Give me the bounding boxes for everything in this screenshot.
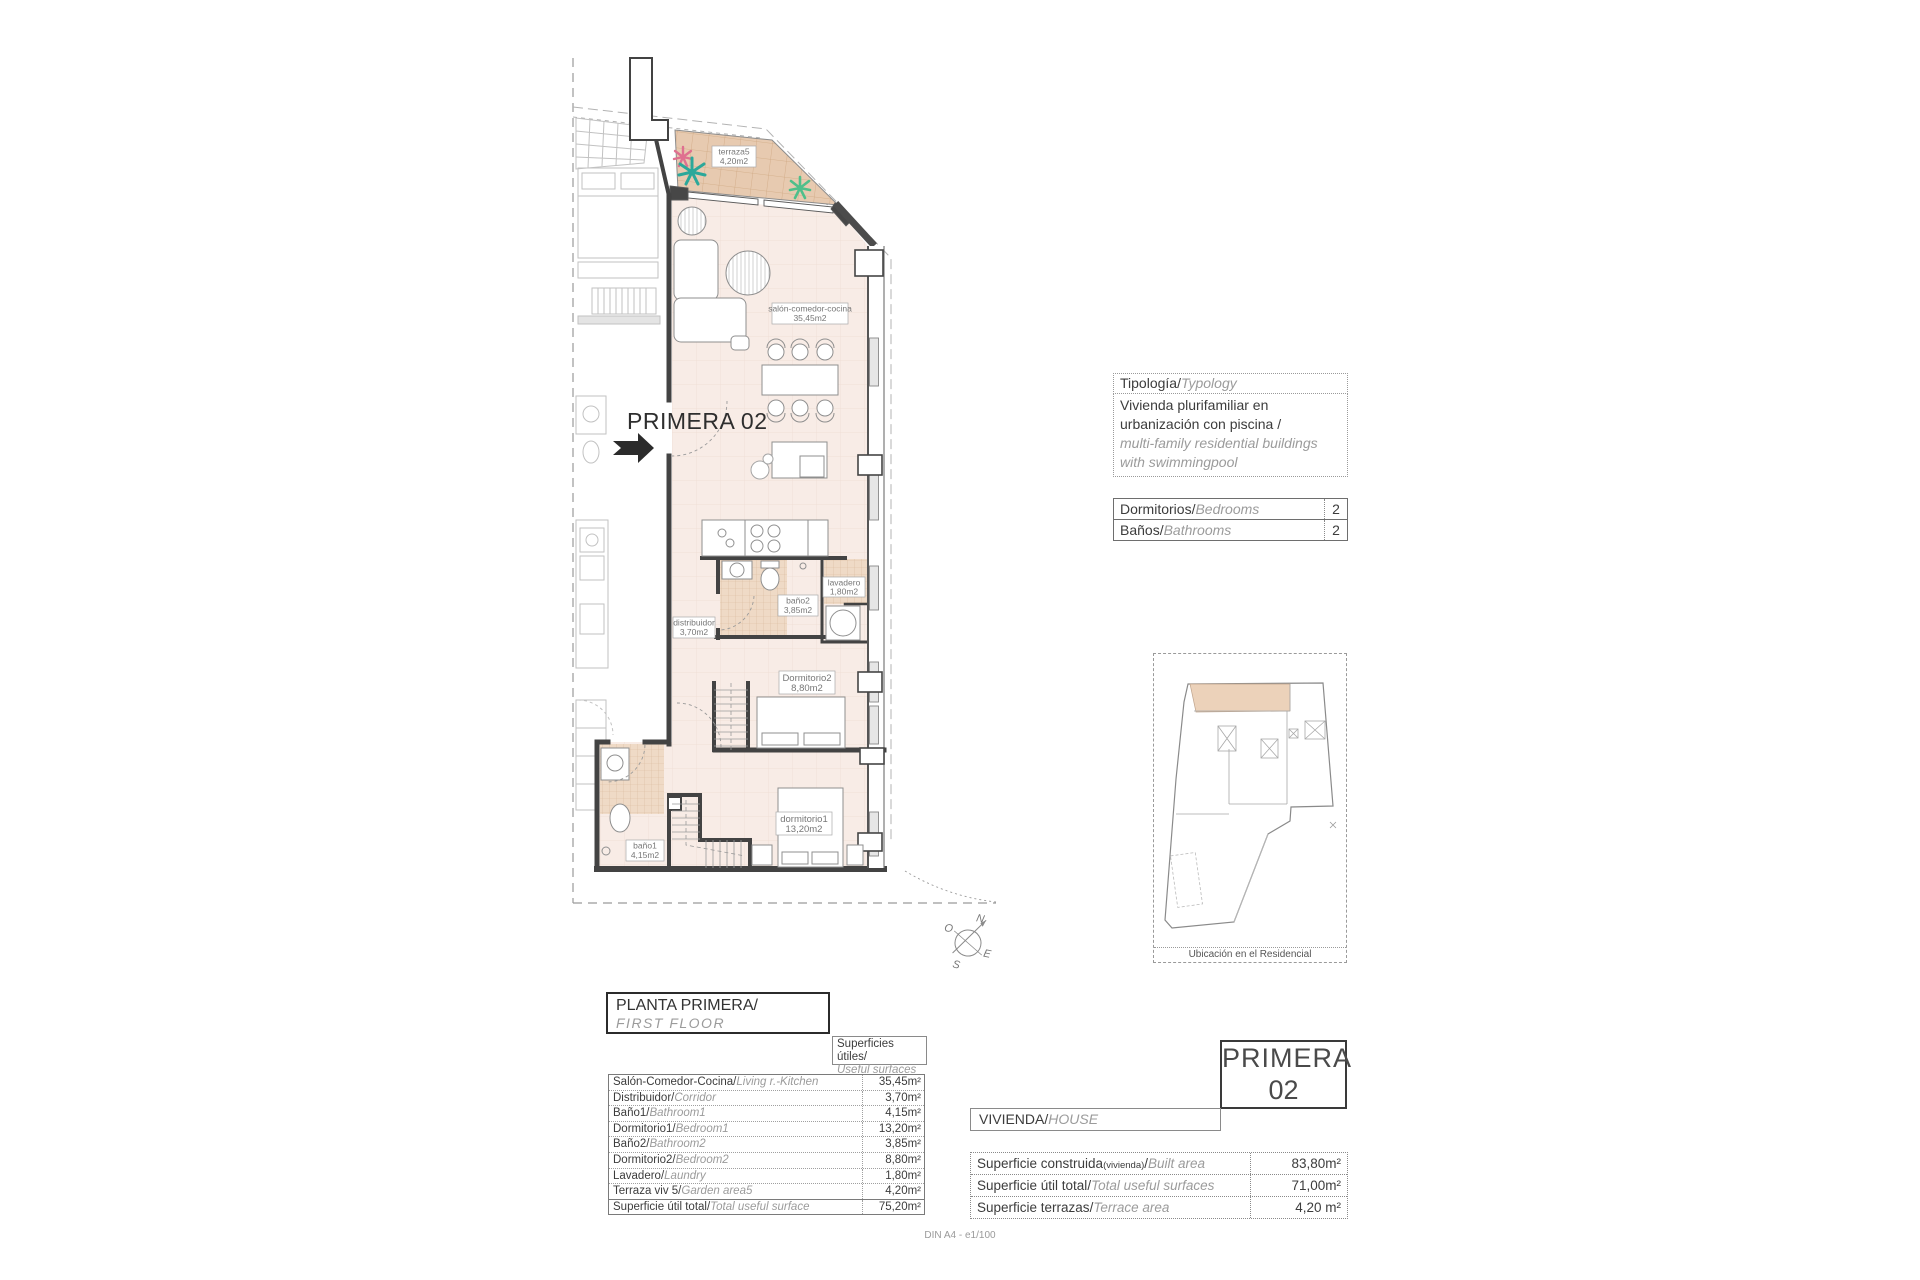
row-label-en: Total useful surfaces xyxy=(1091,1178,1214,1193)
location-map-caption: Ubicación en el Residencial xyxy=(1154,947,1346,962)
adjacent-unit xyxy=(576,118,660,810)
sheet: terraza5 4,20m2 salón-comedor-cocina 35,… xyxy=(0,0,1920,1280)
room-label-terraza: terraza5 4,20m2 xyxy=(712,146,756,167)
floor-title-box: PLANTA PRIMERA/ FIRST FLOOR xyxy=(606,992,830,1034)
compass-icon: N O E S xyxy=(936,906,999,977)
row-label-es: Terraza viv 5/ xyxy=(613,1185,681,1197)
table-row: Baño2/Bathroom2 3,85m² xyxy=(609,1136,924,1152)
svg-text:terraza5: terraza5 xyxy=(718,147,749,157)
row-label-es: Superficie útil total xyxy=(977,1178,1087,1193)
svg-text:4,20m2: 4,20m2 xyxy=(720,156,749,166)
row-value: 4,15m² xyxy=(862,1106,924,1121)
svg-text:8,80m2: 8,80m2 xyxy=(791,683,823,694)
table-row: Dormitorio2/Bedroom2 8,80m² xyxy=(609,1152,924,1168)
svg-text:3,70m2: 3,70m2 xyxy=(680,627,709,637)
typology-body: Vivienda plurifamiliar en urbanización c… xyxy=(1113,393,1348,477)
svg-text:35,45m2: 35,45m2 xyxy=(793,313,826,323)
row-label-en: Total useful surface xyxy=(710,1201,809,1213)
totals-table: Superficie construida(vivienda)/Built ar… xyxy=(970,1152,1348,1219)
table-row: Superficie útil total/Total useful surfa… xyxy=(971,1174,1347,1196)
svg-text:4,15m2: 4,15m2 xyxy=(631,850,660,860)
typology-line1: Vivienda plurifamiliar en xyxy=(1120,396,1341,415)
location-map-drawing xyxy=(1154,654,1346,948)
svg-text:3,85m2: 3,85m2 xyxy=(784,605,813,615)
table-row: Superficie terrazas/Terrace area 4,20 m² xyxy=(971,1196,1347,1218)
vivienda-label-es: VIVIENDA/ xyxy=(979,1111,1048,1127)
table-row: Lavadero/Laundry 1,80m² xyxy=(609,1168,924,1184)
svg-text:O: O xyxy=(943,922,954,936)
room-label-lavadero: lavadero 1,80m2 xyxy=(823,577,865,597)
floor-title-es: PLANTA PRIMERA/ xyxy=(616,996,828,1015)
bathrooms-count: 2 xyxy=(1324,520,1347,540)
bedrooms-label-en: Bedrooms xyxy=(1195,501,1259,517)
typology-header: Tipología/Typology xyxy=(1113,373,1348,394)
arrow-icon xyxy=(613,433,654,463)
row-label-en: Terrace area xyxy=(1093,1200,1169,1215)
table-row: Terraza viv 5/Garden area5 4,20m² xyxy=(609,1183,924,1199)
table-row: Distribuidor/Corridor 3,70m² xyxy=(609,1090,924,1106)
counts-table: Dormitorios/Bedrooms 2 Baños/Bathrooms 2 xyxy=(1113,498,1348,541)
row-label-es: Lavadero/ xyxy=(613,1170,664,1182)
row-value: 75,20m² xyxy=(862,1200,924,1215)
useful-surfaces-label: Superficies útiles/ Useful surfaces xyxy=(832,1036,927,1065)
svg-text:13,20m2: 13,20m2 xyxy=(786,824,823,835)
room-label-bano1: baño1 4,15m2 xyxy=(626,840,664,861)
row-label-en: Living r.-Kitchen xyxy=(736,1076,818,1088)
svg-text:S: S xyxy=(951,958,961,971)
row-label-es: Dormitorio1/ xyxy=(613,1123,676,1135)
row-value: 83,80m² xyxy=(1250,1153,1347,1174)
unit-number: 02 xyxy=(1222,1075,1345,1105)
bathrooms-label-en: Bathrooms xyxy=(1164,522,1232,538)
row-label-es: Baño2/ xyxy=(613,1138,649,1150)
svg-text:1,80m2: 1,80m2 xyxy=(830,587,859,597)
vivienda-header: VIVIENDA/HOUSE xyxy=(970,1108,1221,1131)
svg-text:salón-comedor-cocina: salón-comedor-cocina xyxy=(768,304,852,314)
bedrooms-label-es: Dormitorios/ xyxy=(1120,501,1195,517)
typology-title-es: Tipología/ xyxy=(1120,375,1181,391)
row-label-en: Bathroom1 xyxy=(649,1107,705,1119)
table-row-total: Superficie útil total/Total useful surfa… xyxy=(609,1199,924,1215)
row-value: 35,45m² xyxy=(862,1075,924,1090)
row-label-en: Garden area5 xyxy=(681,1185,752,1197)
row-label-es: Salón-Comedor-Cocina/ xyxy=(613,1076,736,1088)
row-label-en: Laundry xyxy=(664,1170,706,1182)
svg-text:distribuidor: distribuidor xyxy=(673,618,715,628)
row-label-es: Distribuidor/ xyxy=(613,1092,674,1104)
row-label-es: Superficie terrazas xyxy=(977,1200,1090,1215)
bathrooms-label-es: Baños/ xyxy=(1120,522,1164,538)
counts-row-bedrooms: Dormitorios/Bedrooms 2 xyxy=(1114,499,1347,519)
row-value: 1,80m² xyxy=(862,1169,924,1184)
row-value: 4,20 m² xyxy=(1250,1197,1347,1218)
row-label-en: Bedroom1 xyxy=(676,1123,729,1135)
svg-text:baño2: baño2 xyxy=(786,596,810,606)
row-label-es: Baño1/ xyxy=(613,1107,649,1119)
row-value: 3,85m² xyxy=(862,1137,924,1152)
bedrooms-count: 2 xyxy=(1324,499,1347,519)
row-value: 4,20m² xyxy=(862,1184,924,1199)
room-label-bano2: baño2 3,85m2 xyxy=(778,595,818,616)
location-map: Ubicación en el Residencial xyxy=(1153,653,1347,963)
floor-plan: terraza5 4,20m2 salón-comedor-cocina 35,… xyxy=(0,0,1920,1280)
room-label-salon: salón-comedor-cocina 35,45m2 xyxy=(768,303,852,324)
row-label-en: Corridor xyxy=(674,1092,716,1104)
unit-name: PRIMERA xyxy=(1222,1042,1345,1075)
floor-title-en: FIRST FLOOR xyxy=(616,1015,828,1031)
typology-title-en: Typology xyxy=(1181,375,1237,391)
row-label-es: Superficie útil total/ xyxy=(613,1201,710,1213)
typology-line2: urbanización con piscina / xyxy=(1120,415,1341,434)
room-label-dorm2: Dormitorio2 8,80m2 xyxy=(779,671,835,694)
unit-number-box: PRIMERA 02 xyxy=(1220,1040,1347,1109)
plan-title: PRIMERA 02 xyxy=(627,408,768,434)
table-row: Superficie construida(vivienda)/Built ar… xyxy=(971,1153,1347,1174)
svg-text:baño1: baño1 xyxy=(633,841,657,851)
row-label-note: (vivienda) xyxy=(1103,1160,1144,1171)
row-label-en: Built area xyxy=(1148,1156,1205,1171)
useful-label-es: Superficies útiles/ xyxy=(837,1038,926,1064)
surfaces-table: Salón-Comedor-Cocina/Living r.-Kitchen 3… xyxy=(608,1074,925,1215)
typology-line4: with swimmingpool xyxy=(1120,453,1341,472)
counts-row-bathrooms: Baños/Bathrooms 2 xyxy=(1114,519,1347,540)
typology-line3: multi-family residential buildings xyxy=(1120,434,1341,453)
row-value: 13,20m² xyxy=(862,1122,924,1137)
table-row: Dormitorio1/Bedroom1 13,20m² xyxy=(609,1121,924,1137)
row-label-en: Bathroom2 xyxy=(649,1138,705,1150)
row-value: 3,70m² xyxy=(862,1091,924,1106)
table-row: Baño1/Bathroom1 4,15m² xyxy=(609,1105,924,1121)
row-label-es: Superficie construida xyxy=(977,1156,1103,1171)
row-value: 8,80m² xyxy=(862,1153,924,1168)
room-label-distribuidor: distribuidor 3,70m2 xyxy=(673,617,715,638)
vivienda-label-en: HOUSE xyxy=(1048,1111,1098,1127)
row-label-es: Dormitorio2/ xyxy=(613,1154,676,1166)
row-label-en: Bedroom2 xyxy=(676,1154,729,1166)
room-label-dorm1: dormitorio1 13,20m2 xyxy=(776,812,832,835)
row-value: 71,00m² xyxy=(1250,1175,1347,1196)
svg-text:E: E xyxy=(982,948,992,961)
scale-note: DIN A4 - e1/100 xyxy=(860,1230,1060,1241)
table-row: Salón-Comedor-Cocina/Living r.-Kitchen 3… xyxy=(609,1075,924,1090)
